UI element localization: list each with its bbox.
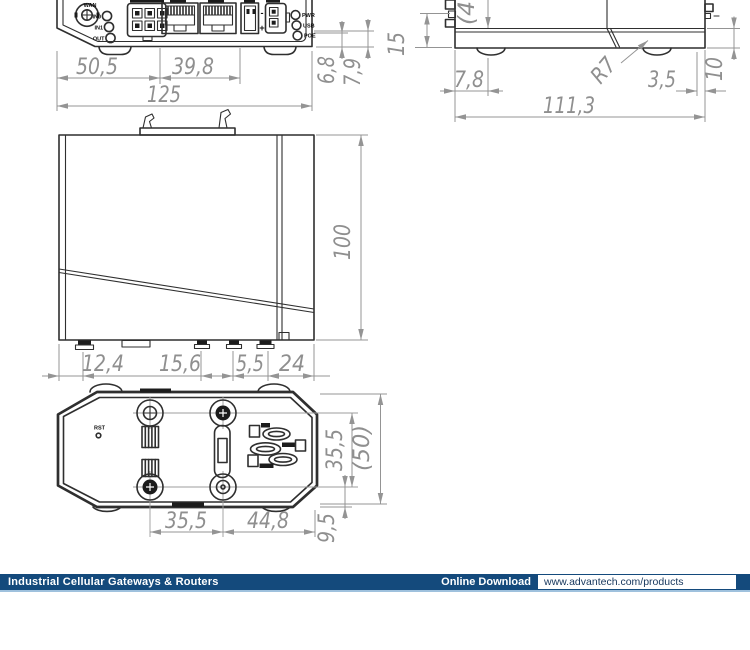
dim-bot-right: 44,8 [247,509,289,534]
dim-side-height: 15 [385,32,410,56]
side-view-dimensions: (4 15 7,8 3,5 111,3 R7 10 [385,0,740,122]
dim-bot-edge: 9,5 [315,513,340,543]
bottom-view-dimensions: 35,5 (50) 9,5 35,5 44,8 [150,394,387,543]
power-connector [266,0,290,33]
dim-bottom-seg3: 5,5 [236,352,264,377]
download-url: www.advantech.com/products [538,575,736,589]
antenna-label: WAN [84,3,97,9]
eth1-port [200,0,236,34]
footer-category-label: Industrial Cellular Gateways & Routers [0,576,219,588]
vent-slots [142,427,159,477]
usb-port [241,0,259,34]
polarity-minus: - [261,8,264,18]
dim-side-total: 111,3 [543,94,595,119]
dim-bottom-seg1: 12,4 [82,352,124,377]
dim-bot-screw-v: 35,5 [323,429,348,471]
dim-front-off2: 7,9 [341,58,366,86]
io-label-in1: IN1 [94,26,103,32]
dim-side-radius: R7 [586,53,622,89]
dim-bot-depth: (50) [350,425,375,471]
technical-drawing-canvas: WAN IN0 IN1 OUT [0,0,750,650]
dim-front-off1: 6,8 [315,56,340,84]
reset-label: RST [94,426,106,432]
dim-face-height: 100 [331,224,356,260]
dim-bottom-seg4: 24 [279,352,305,377]
dim-side-right-offset: 3,5 [648,68,676,93]
front-panel-view: WAN IN0 IN1 OUT [57,0,316,55]
face-view [59,110,314,350]
terminal-block-connector [128,0,168,41]
reset-hole [96,433,101,438]
io-label-in0: IN0 [92,15,101,21]
mounting-screws [137,400,236,500]
side-view [446,0,720,55]
dim-front-seg2: 39,8 [172,55,214,80]
dim-front-seg1: 50,5 [76,55,118,80]
online-download-label: Online Download [441,576,531,588]
footer-bar: Industrial Cellular Gateways & Routers O… [0,574,750,592]
footer-download-area: Online Download www.advantech.com/produc… [441,575,750,589]
dim-side-foot-offset: 7,8 [454,68,484,93]
led-label-pwr: PWR [302,13,315,19]
polarity-plus: + [259,23,264,33]
dim-bottom-seg2: 15,6 [159,352,201,377]
io-label-out: OUT [93,37,105,43]
bottom-view: RST [58,384,358,537]
led-label-poe: POE [304,34,316,40]
led-label-usb: USB [303,23,315,29]
dim-bot-screw-h: 35,5 [165,509,207,534]
status-leds [291,11,302,40]
datasheet-page: WAN IN0 IN1 OUT [0,0,750,650]
dim-side-ref-top: (4 [455,1,480,25]
sim-markings [248,423,306,468]
dim-front-total: 125 [147,83,181,108]
dim-side-plate: 10 [703,57,728,81]
